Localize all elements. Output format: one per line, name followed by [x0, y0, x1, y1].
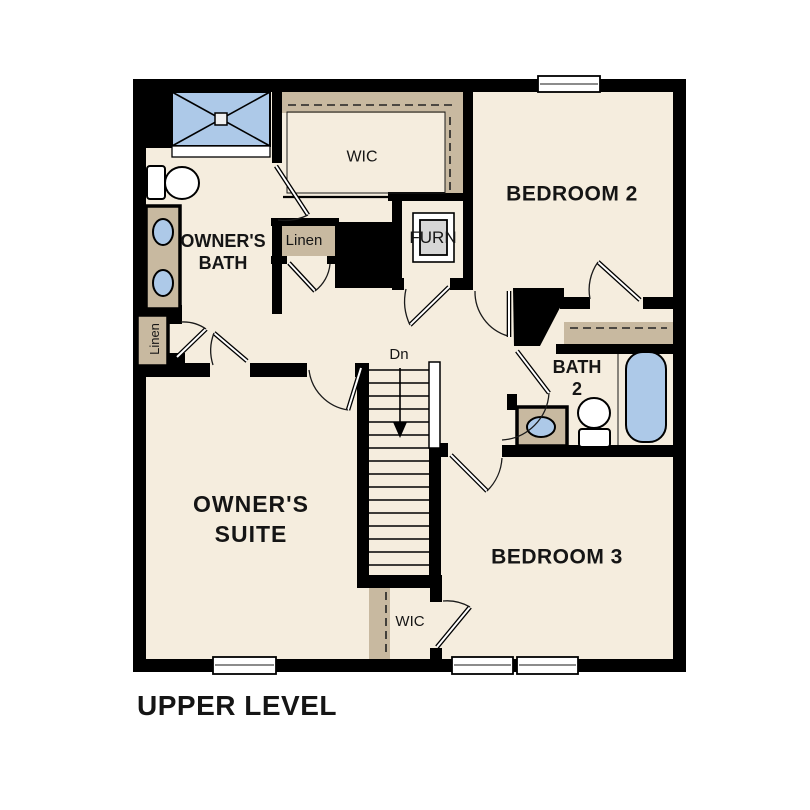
label-linen-owners-suite: Linen [147, 323, 163, 355]
label-wic-top: WIC [346, 147, 377, 166]
label-owners-suite-line2: SUITE [193, 519, 309, 549]
stair-railing [429, 362, 440, 448]
label-wic-bottom: WIC [395, 613, 424, 631]
window-icon [452, 657, 513, 674]
label-owners-bath: OWNER'S BATH [180, 230, 265, 274]
label-bath2-line2: 2 [553, 378, 602, 400]
floor-plan-upper-level: WIC BEDROOM 2 OWNER'S BATH Linen FURN BA… [0, 0, 810, 810]
label-bedroom2: BEDROOM 2 [506, 181, 638, 206]
label-linen-hall: Linen [286, 232, 323, 250]
label-owners-bath-line2: BATH [180, 252, 265, 274]
label-owners-suite-line1: OWNER'S [193, 489, 309, 519]
double-sink-vanity-icon [146, 206, 180, 309]
label-owners-suite: OWNER'S SUITE [193, 489, 309, 549]
plan-title: UPPER LEVEL [137, 690, 337, 722]
label-stairs-down: Dn [389, 346, 408, 364]
toilet-icon [147, 166, 199, 199]
label-bath2: BATH 2 [553, 356, 602, 400]
label-bedroom3: BEDROOM 3 [491, 544, 623, 569]
floor-plan-drawing [0, 0, 810, 810]
window-icon [213, 657, 276, 674]
bedroom2-closet-shelf [564, 322, 673, 344]
label-owners-bath-line1: OWNER'S [180, 230, 265, 252]
sink-vanity-icon [517, 407, 567, 446]
label-furnace-closet: FURN [409, 228, 456, 248]
label-bath2-line1: BATH [553, 356, 602, 378]
shower-icon [172, 92, 270, 157]
toilet-icon [578, 398, 610, 447]
window-icon [517, 657, 578, 674]
window-icon [538, 76, 600, 92]
wic-bottom-shelf [369, 588, 390, 659]
